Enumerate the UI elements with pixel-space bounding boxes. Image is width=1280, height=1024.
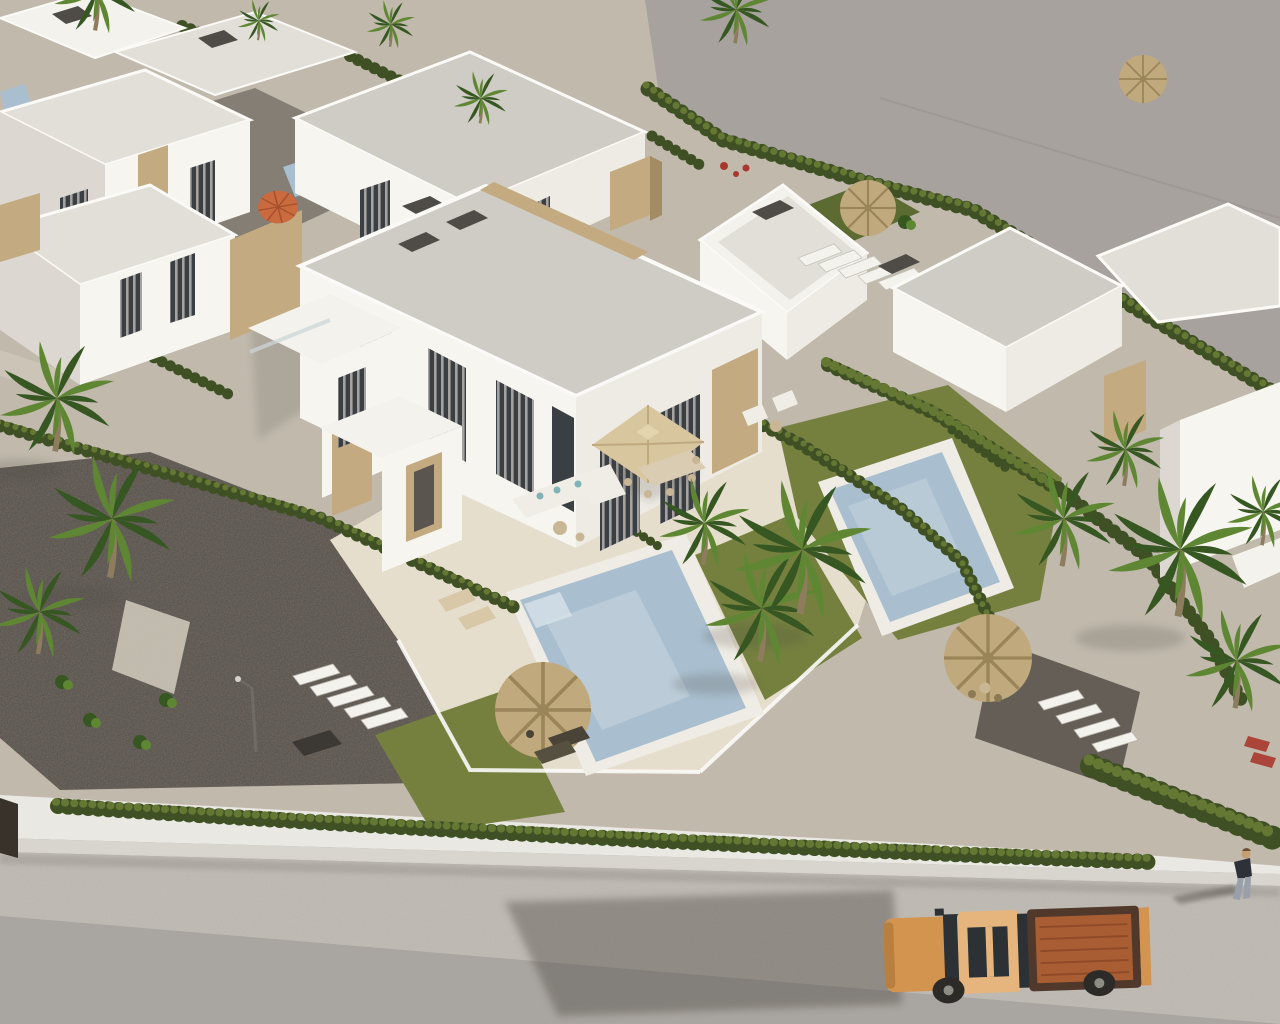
stone-accent xyxy=(0,193,40,262)
dining-chair xyxy=(624,478,632,486)
street-lamp-head xyxy=(235,676,241,682)
stone-chimney-side xyxy=(650,156,662,221)
dining-chair xyxy=(644,490,652,498)
curtain-window xyxy=(120,272,142,338)
bistro-chair xyxy=(968,690,976,698)
coffee-table xyxy=(576,533,585,542)
flowering-bush xyxy=(743,165,750,172)
cushion xyxy=(537,493,544,500)
flowering-bush xyxy=(733,171,739,177)
bistro-table xyxy=(980,683,991,694)
palm-shadow xyxy=(1075,625,1185,651)
dark-gate-panel xyxy=(0,798,18,858)
palm-shadow xyxy=(672,673,760,695)
dining-chair xyxy=(692,456,700,464)
wing-mirror xyxy=(935,908,944,915)
truck-shadow xyxy=(505,890,902,1016)
door xyxy=(414,464,434,532)
curtain-window xyxy=(496,380,534,494)
side-table xyxy=(770,420,782,432)
straw-parasol xyxy=(1119,55,1167,103)
flowering-bush xyxy=(720,162,728,170)
straw-parasol xyxy=(840,180,896,236)
coffee-table xyxy=(553,521,567,535)
render-stage xyxy=(0,0,1280,1024)
straw-parasol xyxy=(495,662,591,758)
small-table xyxy=(526,730,534,738)
cushion xyxy=(554,487,561,494)
cushion xyxy=(575,481,582,488)
aerial-render xyxy=(0,0,1280,1024)
bistro-chair xyxy=(994,694,1002,702)
dining-chair xyxy=(666,488,674,496)
curtain-window xyxy=(170,253,195,323)
